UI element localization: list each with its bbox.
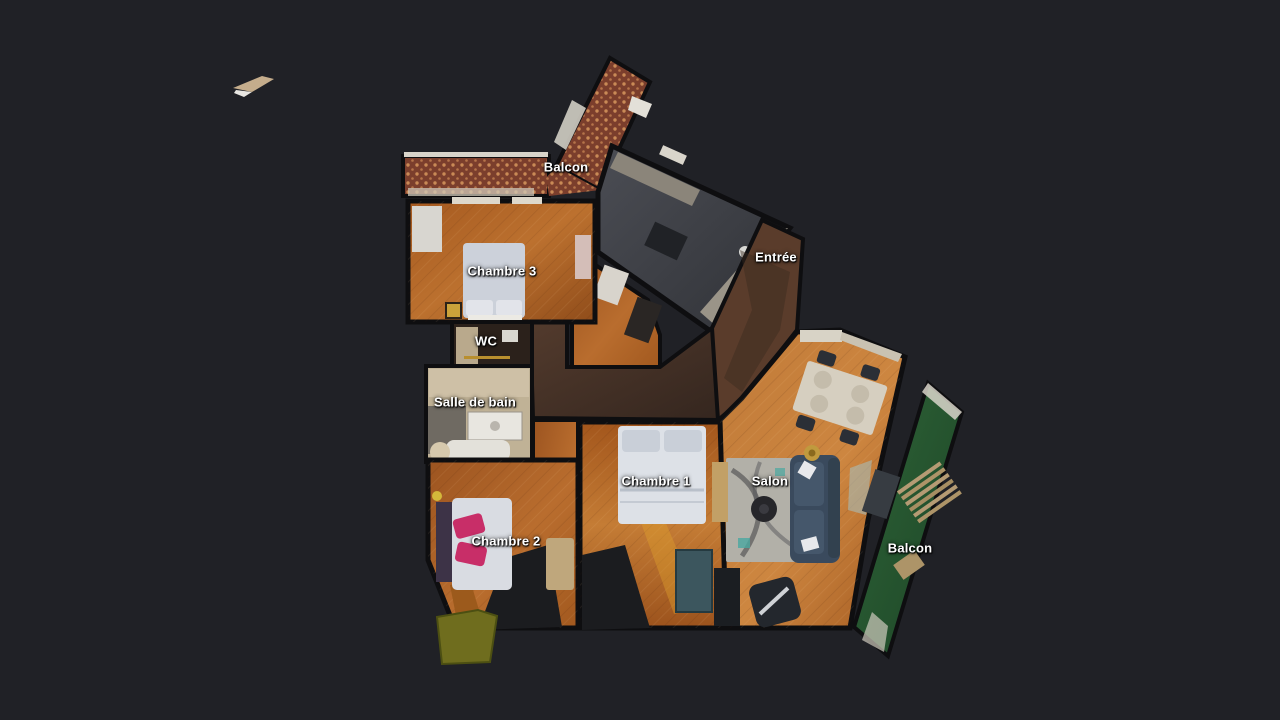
chambre-3-wardrobe — [412, 206, 442, 252]
bathroom-upper-area — [429, 369, 529, 397]
balcony-railing — [404, 152, 548, 157]
chambre-2-lamp — [432, 491, 442, 501]
room-chambre-1[interactable] — [580, 422, 728, 630]
terrace-fragment — [437, 610, 497, 664]
chambre-1-pillow — [664, 430, 702, 452]
tv-unit — [714, 568, 740, 626]
gold-basket-center — [809, 450, 816, 457]
room-label-salon[interactable]: Salon — [752, 474, 788, 489]
wc-shelf — [464, 356, 510, 359]
floorplan-viewport[interactable]: Balcon Chambre 3 WC Salle de bain Chambr… — [0, 0, 1280, 720]
room-label-entree[interactable]: Entrée — [755, 250, 797, 265]
room-label-chambre-1[interactable]: Chambre 1 — [622, 474, 691, 489]
salon-sideboard — [712, 462, 728, 522]
room-label-wc[interactable]: WC — [475, 334, 497, 349]
coffee-table-top — [759, 504, 769, 514]
room-label-chambre-3[interactable]: Chambre 3 — [468, 264, 537, 279]
bathroom-sink — [490, 421, 500, 431]
sofa — [790, 455, 840, 563]
chambre-2-headboard — [436, 502, 452, 582]
rug-teal-accent — [738, 538, 750, 548]
chambre-3-pillow — [496, 300, 522, 316]
chambre-3-pillow — [466, 300, 493, 316]
chambre-3-balcony-door — [452, 197, 500, 204]
chambre-3-window — [512, 197, 542, 204]
room-label-salle-de-bain[interactable]: Salle de bain — [434, 395, 516, 410]
room-label-chambre-2[interactable]: Chambre 2 — [472, 534, 541, 549]
floorplan-canvas[interactable] — [0, 0, 1280, 720]
chambre-1-wardrobe-teal — [676, 550, 712, 612]
wc-toilet — [502, 330, 518, 342]
chambre-2-desk — [546, 538, 574, 590]
salon-radiator — [800, 330, 842, 342]
room-chambre-3[interactable] — [408, 197, 595, 322]
sofa-backrest — [828, 458, 840, 558]
chambre-1-pillow — [622, 430, 660, 452]
chambre-3-chair — [575, 235, 591, 279]
room-label-balcon-top[interactable]: Balcon — [544, 160, 589, 175]
room-salle-de-bain[interactable] — [426, 366, 532, 462]
chambre-3-nightstand — [446, 303, 461, 318]
room-label-balcon-right[interactable]: Balcon — [888, 541, 933, 556]
balcony-ledge — [408, 188, 534, 196]
